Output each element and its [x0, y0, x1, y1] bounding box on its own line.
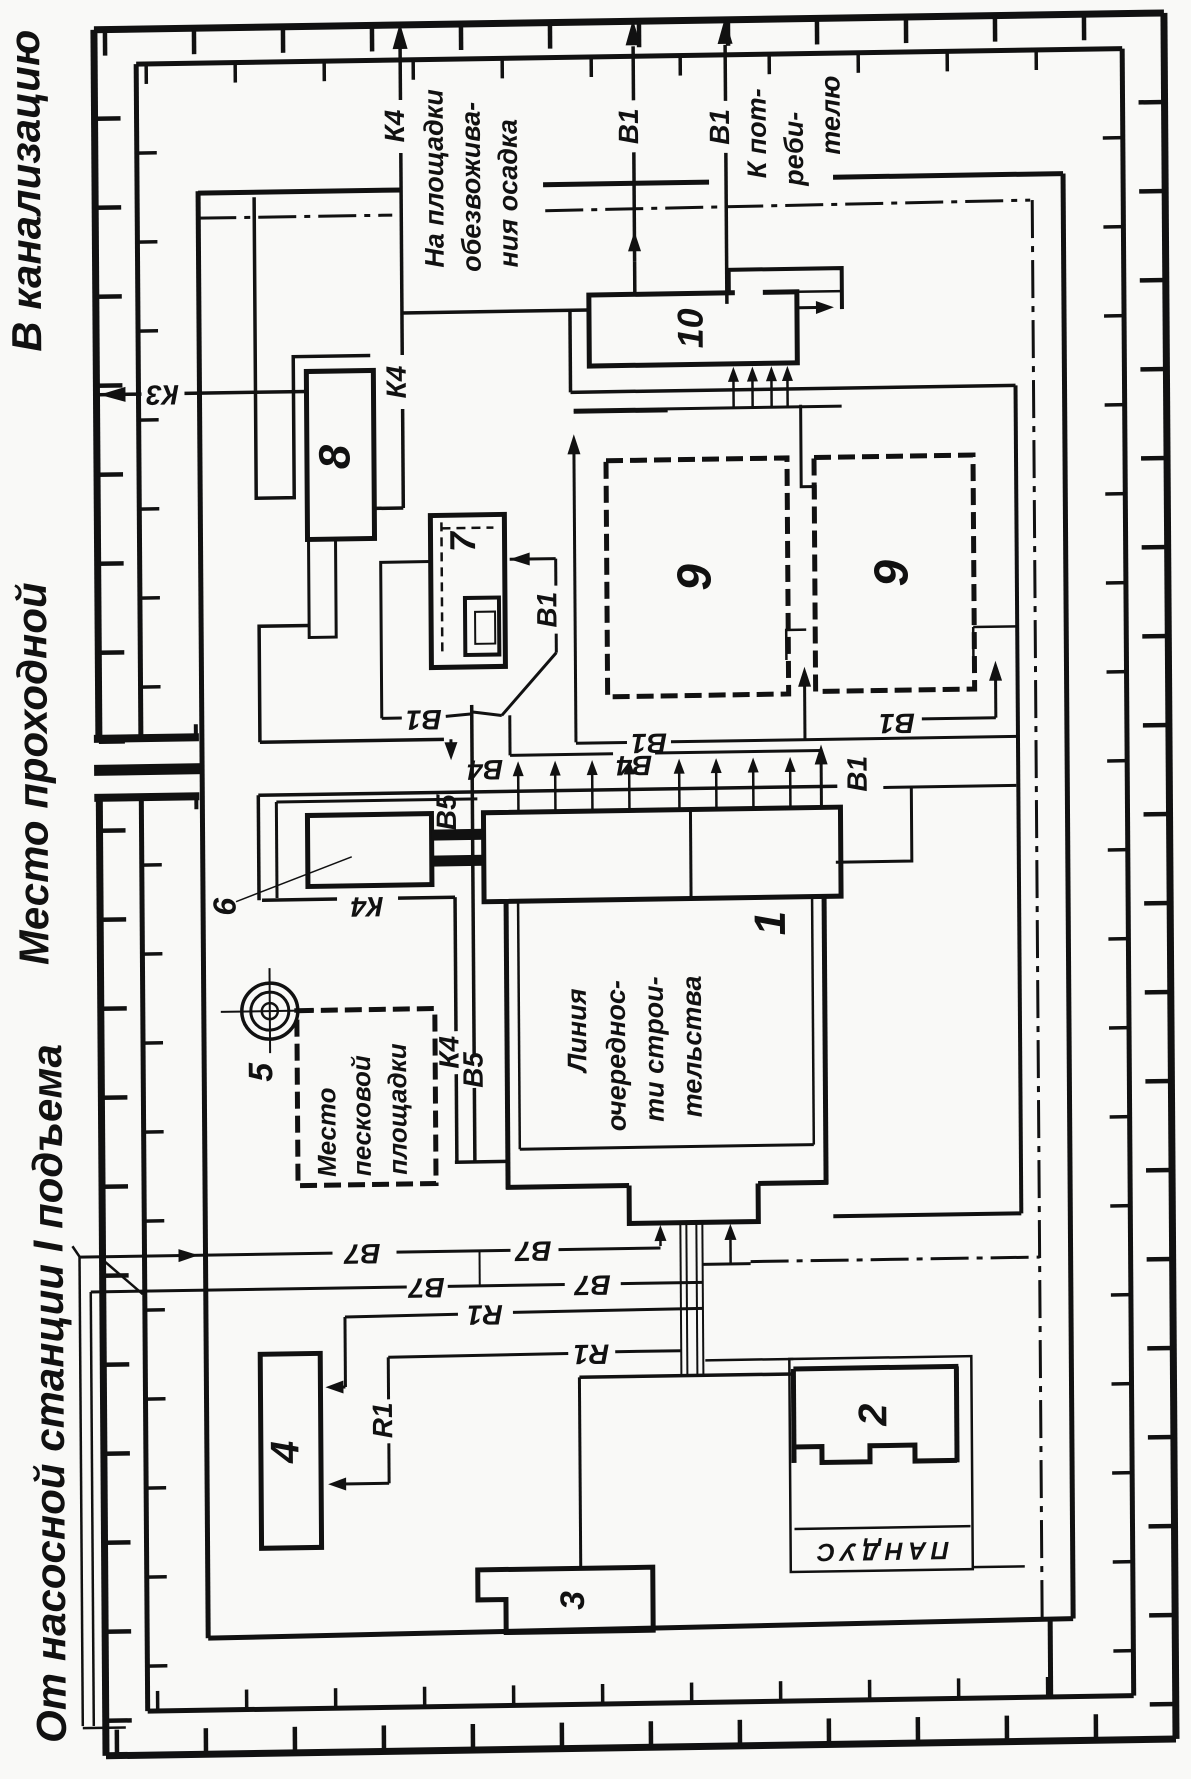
svg-text:10: 10 [669, 308, 710, 349]
svg-text:К3: К3 [146, 379, 179, 411]
svg-text:очереднос-: очереднос- [601, 980, 632, 1132]
svg-text:В1: В1 [879, 708, 915, 740]
svg-text:тельства: тельства [677, 975, 708, 1117]
svg-text:В7: В7 [407, 1272, 444, 1304]
svg-text:К пот-: К пот- [742, 88, 773, 179]
svg-text:ПАНДУС: ПАНДУС [812, 1536, 949, 1566]
svg-text:R1: R1 [573, 1338, 609, 1370]
svg-text:В5: В5 [458, 1051, 489, 1088]
svg-text:4: 4 [263, 1440, 307, 1464]
svg-text:От насосной станции I подъема: От насосной станции I подъема [23, 1044, 75, 1743]
svg-text:8: 8 [310, 444, 359, 470]
svg-text:В1: В1 [631, 727, 667, 759]
svg-text:В1: В1 [531, 592, 562, 628]
svg-text:В1: В1 [406, 704, 442, 736]
svg-text:6: 6 [206, 897, 242, 916]
svg-text:песковой: песковой [346, 1055, 377, 1177]
svg-text:5: 5 [242, 1061, 280, 1082]
svg-text:R1: R1 [467, 1299, 503, 1331]
svg-text:3: 3 [554, 1591, 592, 1611]
svg-text:К4: К4 [350, 891, 383, 923]
svg-text:реби-: реби- [779, 112, 810, 188]
svg-text:На площадки: На площадки [418, 88, 449, 268]
svg-text:В1: В1 [704, 109, 735, 145]
svg-text:9: 9 [865, 559, 918, 587]
svg-text:телю: телю [815, 75, 846, 155]
svg-text:В1: В1 [841, 756, 872, 792]
svg-text:7: 7 [442, 530, 483, 553]
svg-text:В7: В7 [343, 1238, 380, 1270]
svg-text:9: 9 [668, 563, 721, 591]
svg-text:В7: В7 [514, 1235, 551, 1267]
svg-text:R1: R1 [367, 1402, 398, 1438]
svg-text:Место: Место [311, 1087, 342, 1177]
svg-text:В1: В1 [613, 108, 644, 144]
svg-text:ния осадка: ния осадка [493, 119, 524, 268]
svg-text:1: 1 [746, 911, 795, 936]
svg-text:В канализацию: В канализацию [1, 29, 50, 352]
svg-text:ти строи-: ти строи- [639, 976, 670, 1122]
svg-text:2: 2 [851, 1403, 895, 1427]
svg-text:Место проходной: Место проходной [8, 582, 58, 966]
svg-text:В7: В7 [573, 1269, 610, 1301]
svg-text:К4: К4 [381, 365, 412, 399]
svg-text:В4: В4 [467, 754, 503, 786]
svg-text:обезвожива-: обезвожива- [456, 102, 487, 273]
svg-text:площадки: площадки [382, 1043, 413, 1175]
svg-text:К4: К4 [379, 109, 410, 143]
svg-text:Линия: Линия [562, 988, 593, 1074]
